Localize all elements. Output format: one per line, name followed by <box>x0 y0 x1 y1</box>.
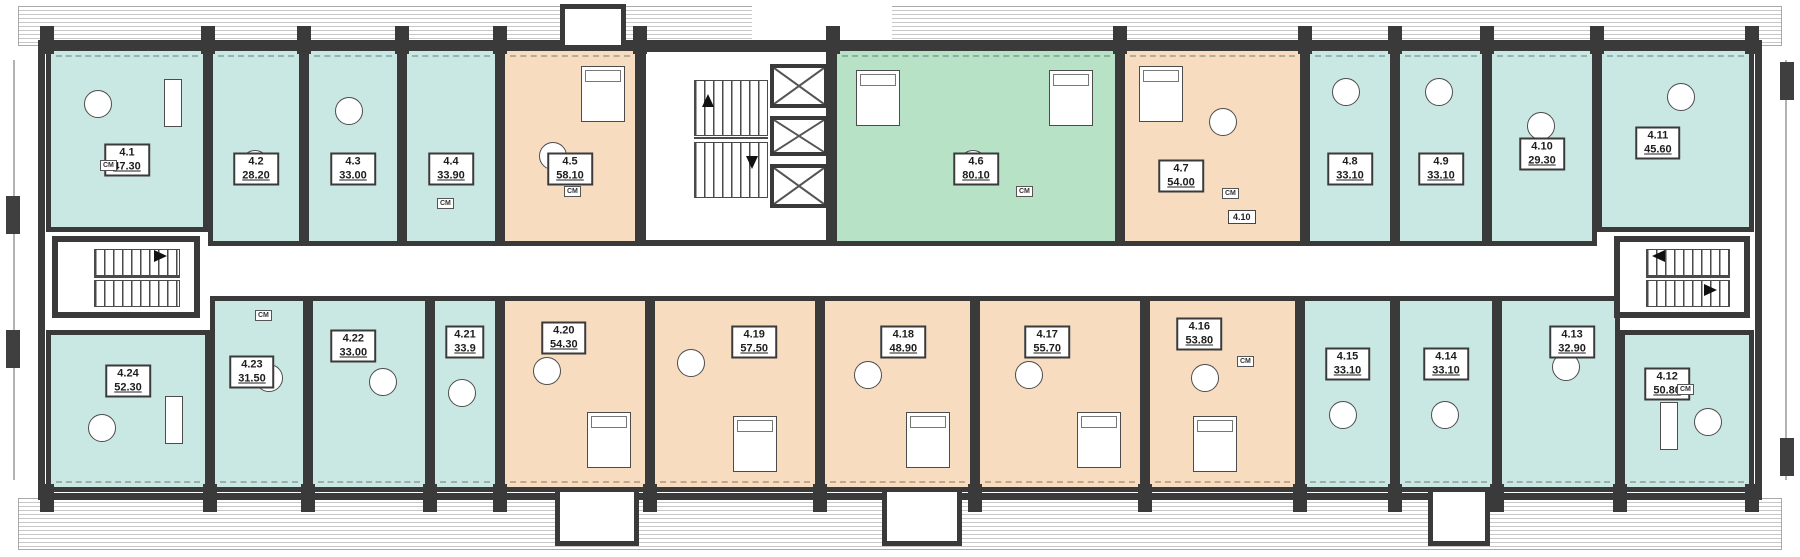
washer-label: СМ <box>255 310 272 321</box>
wall-pier <box>1388 484 1402 512</box>
apartment-4-2[interactable]: 4.2 28.20 <box>208 46 304 246</box>
unit-area: 58.10 <box>556 168 584 182</box>
apartment-4-11[interactable]: 4.11 45.60 <box>1597 46 1754 232</box>
unit-label: 4.16 53.80 <box>1177 318 1223 351</box>
bed-icon <box>1077 412 1121 468</box>
unit-number: 4.8 <box>1336 155 1364 168</box>
stair-flight <box>694 80 768 136</box>
wall-pier <box>826 26 840 54</box>
wall-pier <box>40 26 54 54</box>
table-icon <box>1015 361 1043 389</box>
table-icon <box>854 361 882 389</box>
wall-pier <box>1388 26 1402 54</box>
table-icon <box>84 90 112 118</box>
wall-pier <box>301 484 315 512</box>
wall-pier <box>423 484 437 512</box>
unit-number: 4.10 <box>1528 140 1556 153</box>
table-icon <box>1431 401 1459 429</box>
unit-area: 54.00 <box>1167 176 1195 190</box>
table-icon <box>1209 108 1237 136</box>
stairwell-right <box>1614 236 1750 318</box>
apartment-4-10[interactable]: 4.10 29.30 <box>1487 46 1597 246</box>
unit-number: 4.13 <box>1558 328 1586 341</box>
unit-area: 31.50 <box>238 371 266 385</box>
unit-area: 80.10 <box>962 168 990 182</box>
terrace-pier-left <box>6 330 20 368</box>
unit-area: 54.30 <box>550 338 578 352</box>
unit-label: 4.14 33.10 <box>1423 348 1469 381</box>
unit-label: 4.7 54.00 <box>1158 160 1204 193</box>
unit-label: 4.9 33.10 <box>1418 152 1464 185</box>
apartment-4-16[interactable]: 4.16 53.80 <box>1145 296 1300 492</box>
unit-area: 53.80 <box>1186 334 1214 348</box>
apartment-4-21[interactable]: 4.21 33.9 <box>430 296 500 492</box>
elevator-icon <box>770 64 828 108</box>
wall-pier <box>1745 26 1759 54</box>
bed-icon <box>581 66 625 122</box>
corridor <box>46 240 1754 296</box>
unit-label: 4.24 52.30 <box>105 364 151 397</box>
unit-number: 4.20 <box>550 325 578 338</box>
washer-label: СМ <box>1237 356 1254 367</box>
apartment-4-20[interactable]: 4.20 54.30 <box>500 296 650 492</box>
unit-number: 4.19 <box>740 328 768 341</box>
unit-area: 33.10 <box>1336 168 1364 182</box>
table-icon <box>1329 401 1357 429</box>
unit-label: 4.5 58.10 <box>547 152 593 185</box>
unit-number: 4.9 <box>1427 155 1455 168</box>
unit-number: 4.21 <box>454 328 475 341</box>
table-icon <box>1667 83 1695 111</box>
unit-area: 33.10 <box>1432 364 1460 378</box>
sofa-icon <box>1660 402 1678 450</box>
terrace-edge-right <box>1785 60 1787 480</box>
unit-area: 33.10 <box>1427 168 1455 182</box>
table-icon <box>1332 78 1360 106</box>
unit-label: 4.6 80.10 <box>953 152 999 185</box>
unit-area: 45.60 <box>1644 142 1672 156</box>
terrace-pier-right <box>1780 438 1794 476</box>
table-icon <box>1191 364 1219 392</box>
wall-pier <box>968 484 982 512</box>
stairs-direction-arrow <box>1652 250 1665 262</box>
unit-area: 32.90 <box>1558 341 1586 355</box>
apartment-4-9[interactable]: 4.9 33.10 <box>1395 46 1487 246</box>
unit-label: 4.23 31.50 <box>229 355 275 388</box>
stairs-direction-arrow <box>154 250 167 262</box>
wall-pier <box>297 26 311 54</box>
unit-number: 4.2 <box>242 155 270 168</box>
apartment-4-19[interactable]: 4.19 57.50 <box>650 296 820 492</box>
wall-pier <box>493 26 507 54</box>
elevator-icon <box>770 116 828 156</box>
unit-label: 4.21 33.9 <box>445 325 484 358</box>
unit-label: 4.17 55.70 <box>1024 325 1070 358</box>
wall-pier <box>633 26 647 54</box>
apartment-4-3[interactable]: 4.3 33.00 <box>304 46 402 246</box>
apartment-4-8[interactable]: 4.8 33.10 <box>1305 46 1395 246</box>
wall-pier <box>1745 484 1759 512</box>
wall-pier <box>493 484 507 512</box>
unit-area: 33.00 <box>339 168 367 182</box>
washer-label: СМ <box>437 198 454 209</box>
wall-pier <box>201 26 215 54</box>
unit-number: 4.1 <box>113 147 141 160</box>
unit-label: 4.3 33.00 <box>330 152 376 185</box>
stair-flight <box>94 249 180 276</box>
unit-label: 4.13 32.90 <box>1549 325 1595 358</box>
apartment-4-7[interactable]: 4.7 54.00 <box>1120 46 1305 246</box>
stairwell-left <box>52 236 200 318</box>
unit-number: 4.14 <box>1432 351 1460 364</box>
unit-label: 4.19 57.50 <box>731 325 777 358</box>
elevator-icon <box>770 164 828 208</box>
stair-bump-top <box>560 4 626 50</box>
wall-pier <box>1113 26 1127 54</box>
floor-plan: 4.1 47.30 4.2 28.20 4.3 33.00 4.4 33.90 … <box>0 0 1800 557</box>
unit-label: 4.18 48.90 <box>881 325 927 358</box>
stair-flight <box>94 280 180 307</box>
apartment-4-5[interactable]: 4.5 58.10 <box>500 46 640 246</box>
bed-icon <box>1139 66 1183 122</box>
wall-pier <box>1138 484 1152 512</box>
table-icon <box>1425 78 1453 106</box>
wall-pier <box>1613 484 1627 512</box>
unit-area: 52.30 <box>114 380 142 394</box>
washer-label: СМ <box>564 186 581 197</box>
bed-icon <box>1049 70 1093 126</box>
unit-number: 4.3 <box>339 155 367 168</box>
unit-number: 4.23 <box>238 358 266 371</box>
table-icon <box>1527 112 1555 140</box>
bed-icon <box>1193 416 1237 472</box>
unit-area: 47.30 <box>113 160 141 174</box>
stair-flight <box>694 142 768 198</box>
unit-number: 4.24 <box>114 367 142 380</box>
apartment-4-1[interactable]: 4.1 47.30 <box>46 46 208 232</box>
sofa-icon <box>165 396 183 444</box>
apartment-4-15[interactable]: 4.15 33.10 <box>1300 296 1395 492</box>
stairs-up-arrow <box>702 94 714 107</box>
apartment-4-18[interactable]: 4.18 48.90 <box>820 296 975 492</box>
unit-label: 4.22 33.00 <box>331 329 377 362</box>
apartment-4-17[interactable]: 4.17 55.70 <box>975 296 1145 492</box>
apartment-4-22[interactable]: 4.22 33.00 <box>308 296 430 492</box>
apartment-4-24[interactable]: 4.24 52.30 <box>46 330 210 492</box>
sofa-icon <box>164 79 182 127</box>
table-icon <box>448 379 476 407</box>
stair-flight <box>1646 280 1730 307</box>
unit-label: 4.20 54.30 <box>541 322 587 355</box>
bed-icon <box>906 412 950 468</box>
wall-pier <box>1293 484 1307 512</box>
unit-number: 4.5 <box>556 155 584 168</box>
unit-area: 57.50 <box>740 341 768 355</box>
unit-label: 4.2 28.20 <box>233 152 279 185</box>
unit-label: 4.15 33.10 <box>1325 348 1371 381</box>
central-core <box>640 46 832 246</box>
unit-area: 28.20 <box>242 168 270 182</box>
apartment-4-4[interactable]: 4.4 33.90 <box>402 46 500 246</box>
unit-area: 33.00 <box>340 345 368 359</box>
unit-area: 33.90 <box>437 168 465 182</box>
terrace-pier-left <box>6 196 20 234</box>
unit-number: 4.18 <box>890 328 918 341</box>
washer-label: СМ <box>100 160 117 171</box>
unit-label: 4.4 33.90 <box>428 152 474 185</box>
wall-pier <box>1298 26 1312 54</box>
apartment-4-12[interactable]: 4.12 50.80 <box>1620 330 1754 492</box>
unit-number: 4.15 <box>1334 351 1362 364</box>
table-icon <box>533 357 561 385</box>
unit-label: 4.10 29.30 <box>1519 137 1565 170</box>
wall-pier <box>813 484 827 512</box>
unit-number: 4.22 <box>340 332 368 345</box>
unit-number: 4.17 <box>1033 328 1061 341</box>
unit-area: 33.9 <box>454 341 475 355</box>
washer-label: СМ <box>1016 186 1033 197</box>
wall-pier <box>1490 484 1504 512</box>
unit-area: 48.90 <box>890 341 918 355</box>
stair-divider <box>1646 276 1730 278</box>
wall-pier <box>643 484 657 512</box>
storage-room-label: 4.10 <box>1228 210 1256 224</box>
table-icon <box>335 97 363 125</box>
apartment-4-6[interactable]: 4.6 80.10 <box>832 46 1120 246</box>
unit-area: 29.30 <box>1528 153 1556 167</box>
wall-pier <box>1480 26 1494 54</box>
bed-icon <box>733 416 777 472</box>
terrace-pier-right <box>1780 62 1794 100</box>
apartment-4-13[interactable]: 4.13 32.90 <box>1497 296 1620 492</box>
wall-pier <box>40 484 54 512</box>
wall-pier <box>395 26 409 54</box>
unit-number: 4.7 <box>1167 163 1195 176</box>
unit-number: 4.11 <box>1644 129 1672 142</box>
terrace-edge-left <box>13 60 15 480</box>
unit-area: 33.10 <box>1334 364 1362 378</box>
table-icon <box>369 368 397 396</box>
unit-number: 4.16 <box>1186 321 1214 334</box>
stairs-down-arrow <box>746 156 758 169</box>
bed-icon <box>856 70 900 126</box>
washer-label: СМ <box>1222 188 1239 199</box>
table-icon <box>1694 408 1722 436</box>
unit-number: 4.12 <box>1653 370 1681 383</box>
washer-label: СМ <box>1677 384 1694 395</box>
wall-pier <box>1590 26 1604 54</box>
unit-number: 4.6 <box>962 155 990 168</box>
unit-area: 55.70 <box>1033 341 1061 355</box>
stair-divider <box>694 137 768 139</box>
stair-divider <box>94 276 180 278</box>
unit-label: 4.8 33.10 <box>1327 152 1373 185</box>
unit-number: 4.4 <box>437 155 465 168</box>
wall-pier <box>203 484 217 512</box>
bed-icon <box>587 412 631 468</box>
apartment-4-23[interactable]: 4.23 31.50 <box>210 296 308 492</box>
table-icon <box>88 414 116 442</box>
apartment-4-14[interactable]: 4.14 33.10 <box>1395 296 1497 492</box>
unit-label: 4.11 45.60 <box>1635 126 1681 159</box>
stairs-direction-arrow <box>1704 284 1717 296</box>
table-icon <box>677 349 705 377</box>
